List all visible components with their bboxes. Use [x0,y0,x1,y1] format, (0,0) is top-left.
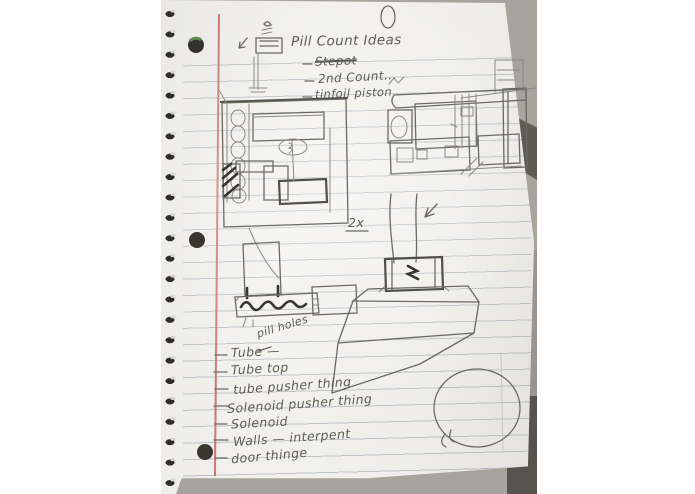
circle-doodle [434,369,520,447]
quantity-label: 2x [348,215,364,230]
main-mechanism-sketch [219,90,348,278]
page-title: Pill Count Ideas [291,32,402,50]
idea-bullet-1: Stepot [315,53,357,68]
tube-solenoid-box-sketch [332,194,503,452]
oval-doodle [381,6,395,28]
parts-item-2: Tube top [231,360,289,378]
side-assembly-sketch [388,58,536,176]
parts-item-1: Tube — [231,343,281,361]
notebook-photo: Pill Count Ideas Stepot 2nd Count... tin… [161,0,537,494]
idea-bullet-3: tinfoil piston [315,85,392,102]
screenshot-frame: Pill Count Ideas Stepot 2nd Count... tin… [0,0,695,494]
mini-tube-sketch [239,22,282,92]
binder-holes [188,37,213,460]
pusher-assembly-sketch [235,242,357,327]
parts-item-5: Solenoid [231,414,289,432]
